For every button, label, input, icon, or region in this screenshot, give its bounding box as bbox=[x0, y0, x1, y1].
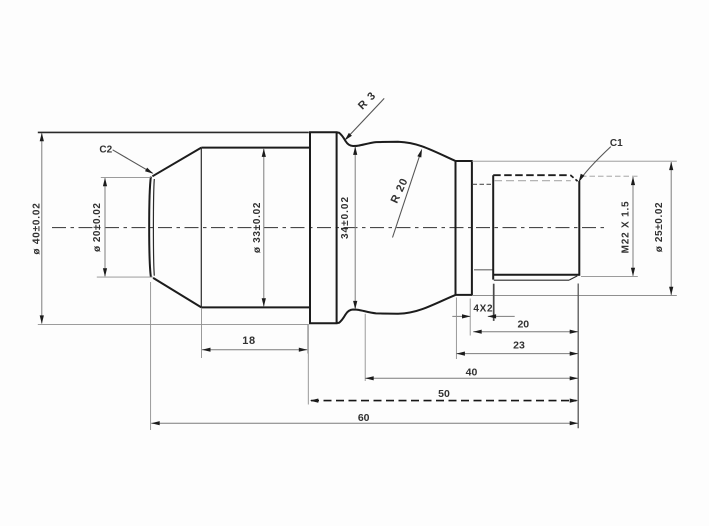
svg-text:50: 50 bbox=[438, 388, 450, 400]
svg-text:60: 60 bbox=[358, 412, 370, 424]
svg-text:34±0.02: 34±0.02 bbox=[340, 196, 351, 239]
svg-text:23: 23 bbox=[513, 339, 525, 351]
svg-text:40: 40 bbox=[466, 367, 478, 379]
svg-text:4X2: 4X2 bbox=[473, 303, 493, 314]
svg-text:ø 40±0.02: ø 40±0.02 bbox=[31, 202, 42, 254]
svg-text:20: 20 bbox=[517, 319, 529, 331]
svg-text:ø 33±0.02: ø 33±0.02 bbox=[252, 202, 263, 253]
svg-text:C1: C1 bbox=[610, 138, 623, 149]
svg-text:ø 20±0.02: ø 20±0.02 bbox=[92, 203, 103, 252]
svg-text:18: 18 bbox=[242, 335, 255, 347]
svg-text:ø 25±0.02: ø 25±0.02 bbox=[654, 202, 665, 252]
svg-text:M22 X 1.5: M22 X 1.5 bbox=[620, 201, 631, 254]
svg-text:C2: C2 bbox=[99, 144, 112, 155]
